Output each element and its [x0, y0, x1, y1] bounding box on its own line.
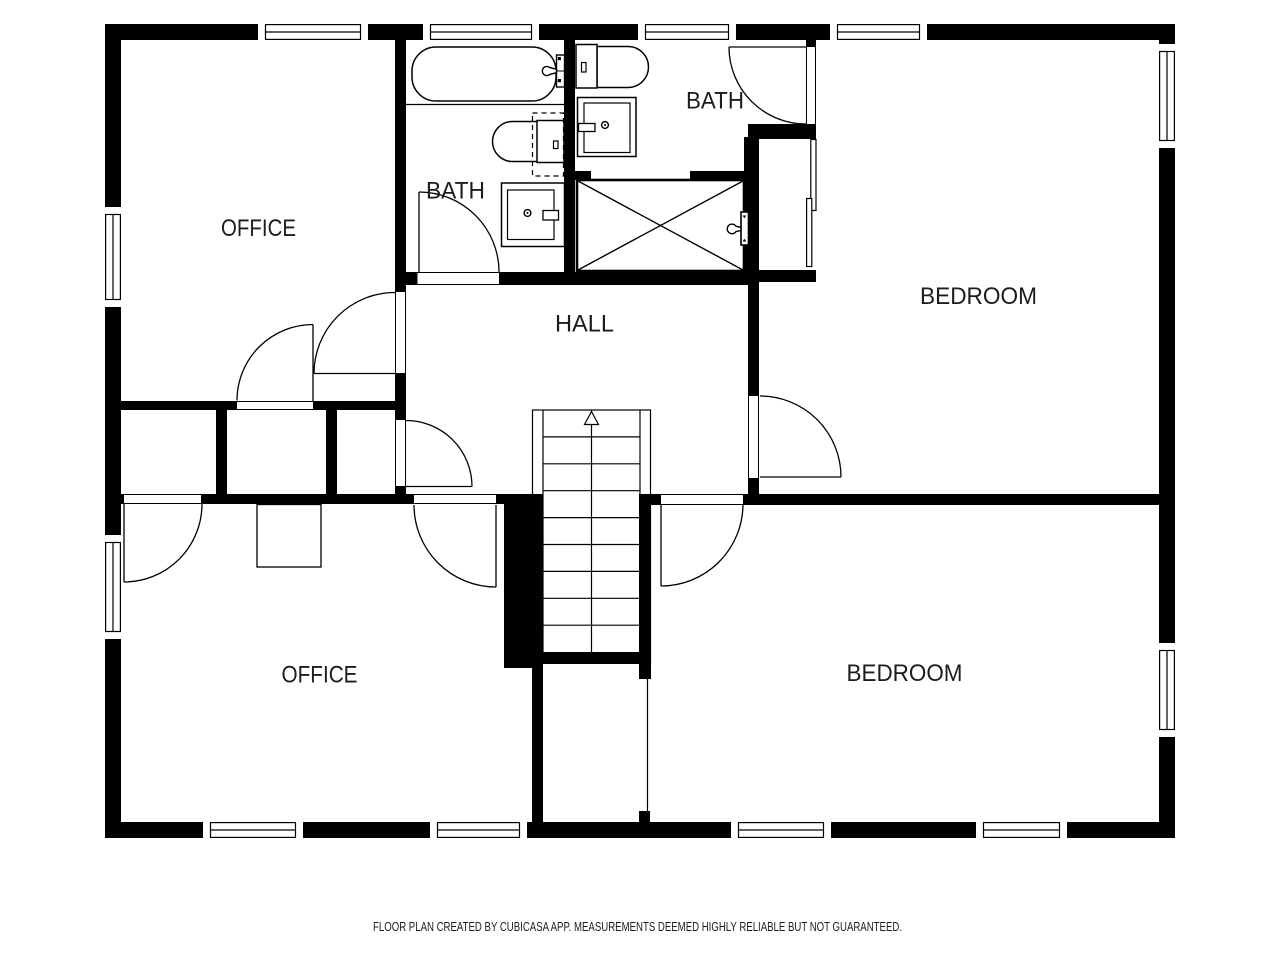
svg-text:BEDROOM: BEDROOM — [847, 660, 963, 687]
svg-text:BATH: BATH — [686, 88, 744, 115]
svg-text:BATH: BATH — [426, 178, 485, 205]
svg-text:HALL: HALL — [555, 311, 614, 338]
svg-text:BEDROOM: BEDROOM — [920, 283, 1037, 310]
svg-text:FLOOR PLAN CREATED BY CUBICASA: FLOOR PLAN CREATED BY CUBICASA APP. MEAS… — [373, 919, 902, 934]
svg-text:OFFICE: OFFICE — [282, 662, 358, 689]
svg-text:OFFICE: OFFICE — [221, 215, 296, 242]
